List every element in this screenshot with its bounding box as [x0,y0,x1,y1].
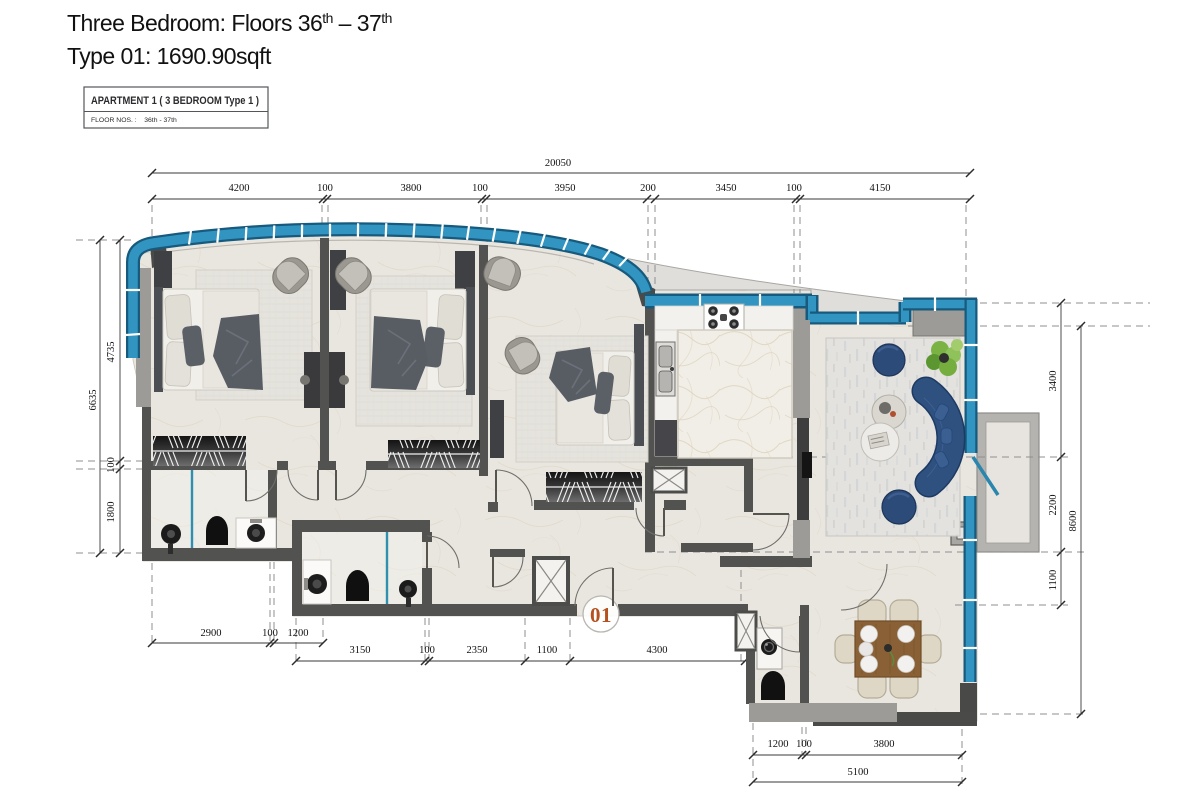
svg-text:1800: 1800 [106,502,117,523]
svg-text:4300: 4300 [647,645,668,656]
svg-text:FLOOR NOS. : 36th - 37th: FLOOR NOS. : 36th - 37th [91,117,177,124]
svg-text:3150: 3150 [350,645,371,656]
svg-text:1200: 1200 [288,628,309,639]
svg-text:3950: 3950 [555,183,576,194]
svg-text:200: 200 [640,183,656,194]
svg-text:5100: 5100 [848,767,869,778]
svg-text:1100: 1100 [1048,570,1059,591]
svg-text:Type 01: 1690.90sqft: Type 01: 1690.90sqft [67,43,272,69]
svg-text:20050: 20050 [545,158,571,169]
svg-text:100: 100 [262,628,278,639]
svg-text:3800: 3800 [874,739,895,750]
svg-text:2350: 2350 [467,645,488,656]
svg-text:100: 100 [106,457,117,473]
svg-text:100: 100 [472,183,488,194]
svg-text:4200: 4200 [229,183,250,194]
svg-text:1200: 1200 [768,739,789,750]
svg-text:2900: 2900 [201,628,222,639]
svg-text:2200: 2200 [1048,495,1059,516]
svg-text:3800: 3800 [401,183,422,194]
svg-text:100: 100 [317,183,333,194]
svg-text:8600: 8600 [1068,511,1079,532]
svg-text:APARTMENT 1 ( 3 BEDROOM Type: APARTMENT 1 ( 3 BEDROOM Type 1 ) [91,95,259,107]
svg-text:01: 01 [590,603,612,627]
svg-text:3450: 3450 [716,183,737,194]
svg-text:4150: 4150 [870,183,891,194]
svg-text:6635: 6635 [88,390,99,411]
svg-text:100: 100 [796,739,812,750]
svg-text:100: 100 [419,645,435,656]
svg-text:3400: 3400 [1048,371,1059,392]
svg-text:Three Bedroom: Floors 36th – 3: Three Bedroom: Floors 36th – 37th [67,10,392,36]
svg-text:4735: 4735 [106,342,117,363]
svg-text:100: 100 [786,183,802,194]
svg-text:1100: 1100 [537,645,558,656]
